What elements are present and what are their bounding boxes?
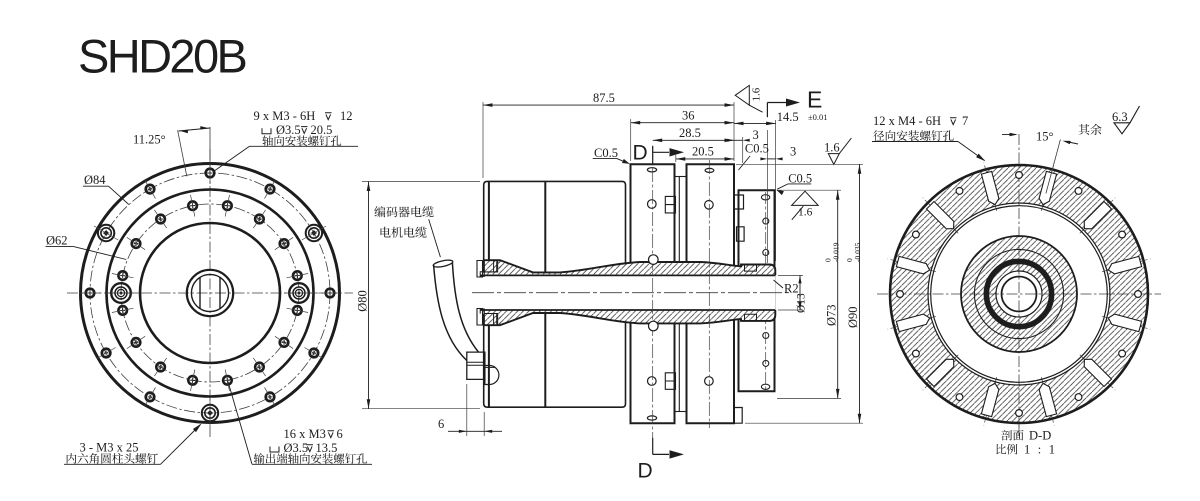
svg-text:C0.5: C0.5 xyxy=(788,171,812,185)
svg-text:20.5: 20.5 xyxy=(311,123,333,137)
svg-text:E: E xyxy=(807,87,822,113)
svg-text:-0.019: -0.019 xyxy=(832,242,841,262)
svg-text:16 x M3: 16 x M3 xyxy=(284,427,326,441)
svg-text:6.3: 6.3 xyxy=(1112,110,1128,124)
svg-text:1.6: 1.6 xyxy=(751,87,763,101)
svg-text:Ø3.5: Ø3.5 xyxy=(284,441,309,455)
svg-text:D: D xyxy=(638,460,653,483)
svg-text:3: 3 xyxy=(753,128,759,142)
svg-text:C0.5: C0.5 xyxy=(745,142,769,156)
svg-text:Ø62: Ø62 xyxy=(46,234,68,248)
svg-text:1.6: 1.6 xyxy=(798,207,813,219)
svg-text:13.5: 13.5 xyxy=(316,441,338,455)
svg-text:11.25°: 11.25° xyxy=(133,133,166,147)
svg-text:D-D: D-D xyxy=(1029,429,1051,443)
svg-text:87.5: 87.5 xyxy=(593,91,615,105)
svg-text:3 - M3 x 25: 3 - M3 x 25 xyxy=(80,441,139,455)
svg-text:9 x M3 - 6H: 9 x M3 - 6H xyxy=(254,109,316,123)
svg-text:1 : 1: 1 : 1 xyxy=(1024,443,1057,457)
svg-text:D: D xyxy=(633,142,648,165)
svg-text:Ø80: Ø80 xyxy=(355,290,369,312)
svg-text:1.6: 1.6 xyxy=(824,141,840,155)
svg-text:SHD20B: SHD20B xyxy=(78,30,246,83)
svg-text:Ø13: Ø13 xyxy=(796,293,808,313)
svg-text:12 x M4 - 6H: 12 x M4 - 6H xyxy=(873,114,941,128)
svg-text:-0.035: -0.035 xyxy=(853,242,862,262)
svg-text:7: 7 xyxy=(962,114,968,128)
svg-text:36: 36 xyxy=(682,108,695,122)
svg-text:±0.01: ±0.01 xyxy=(808,112,828,122)
svg-text:Ø84: Ø84 xyxy=(84,173,106,187)
svg-text:15°: 15° xyxy=(1036,130,1054,144)
svg-text:20.5: 20.5 xyxy=(692,145,714,159)
svg-text:28.5: 28.5 xyxy=(679,126,701,140)
svg-text:C0.5: C0.5 xyxy=(594,146,618,160)
svg-text:Ø90: Ø90 xyxy=(846,306,860,328)
svg-text:12: 12 xyxy=(340,109,353,123)
svg-text:Ø73: Ø73 xyxy=(825,304,839,326)
svg-text:Ø3.5: Ø3.5 xyxy=(276,123,301,137)
svg-text:14.5: 14.5 xyxy=(777,110,799,124)
svg-text:6: 6 xyxy=(438,417,444,431)
svg-text:3: 3 xyxy=(790,145,796,159)
svg-text:6: 6 xyxy=(337,427,343,441)
